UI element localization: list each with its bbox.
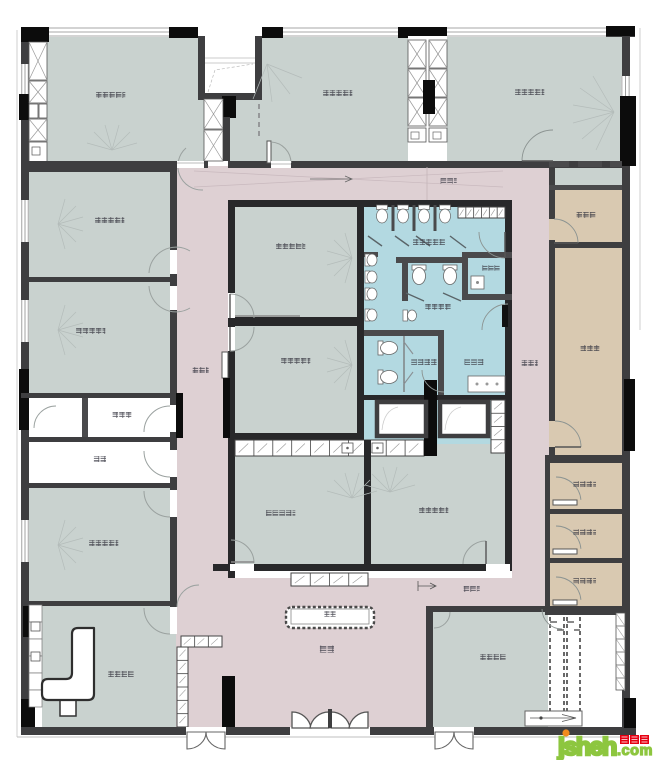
svg-text:jsheh: jsheh [557,733,616,760]
svg-text:.com: .com [617,743,653,759]
